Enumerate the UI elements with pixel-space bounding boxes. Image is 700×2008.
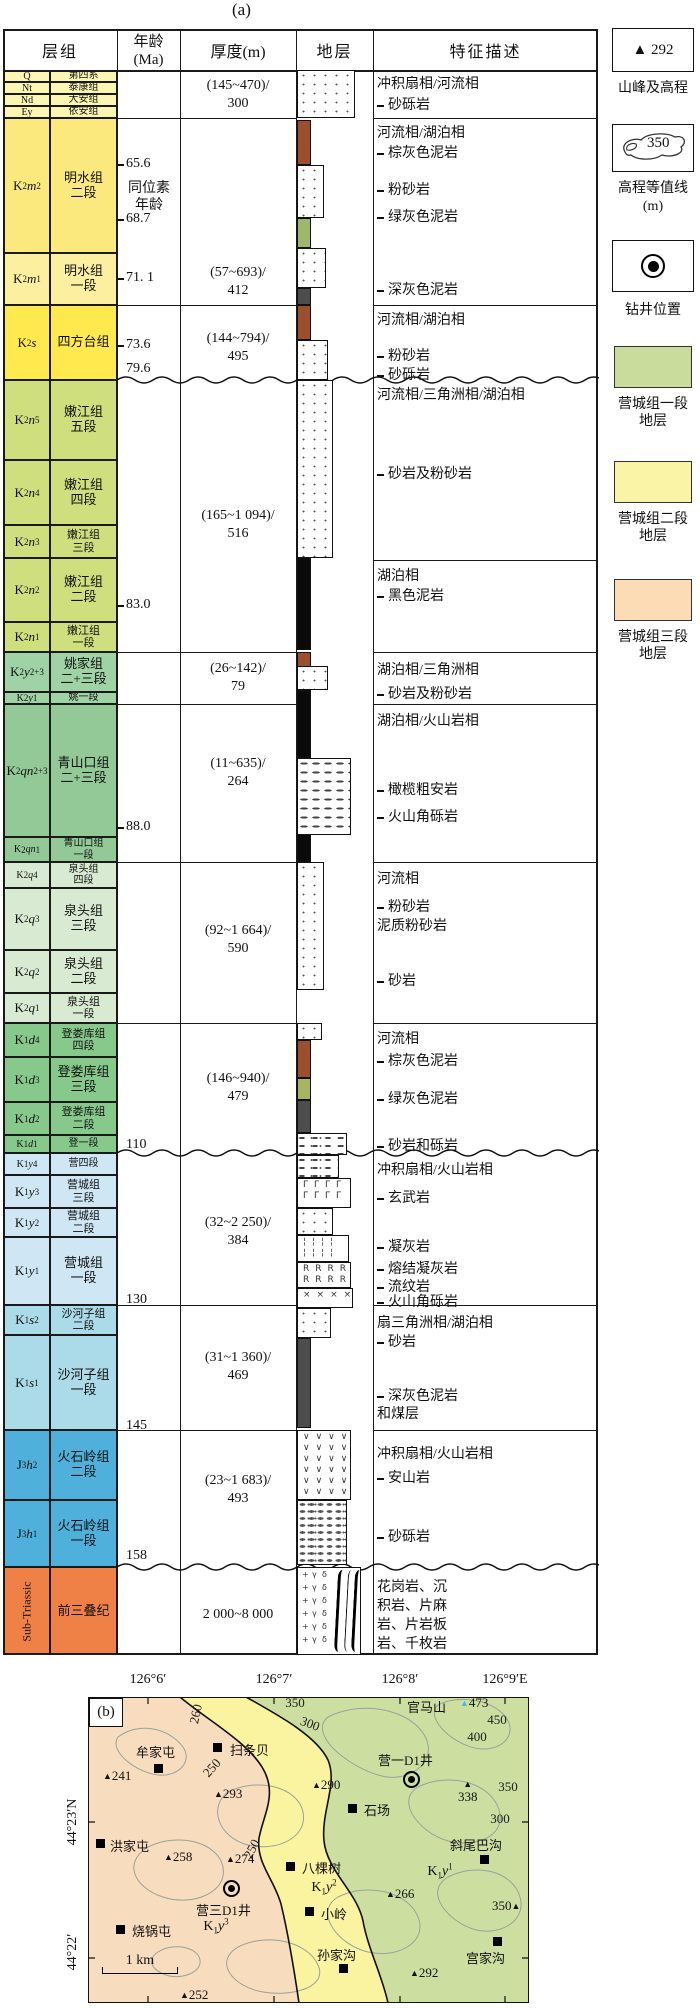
- age-value: 158: [126, 1548, 147, 1564]
- table-vertical-line: [49, 70, 50, 1655]
- description-line: 积岩、片麻: [377, 1595, 597, 1615]
- description-line: 粉砂岩: [377, 896, 597, 916]
- map-zone-label: K1y1: [427, 1861, 452, 1880]
- legend-yingcheng2-swatch: [614, 461, 692, 503]
- strat-code-cell: K2qn2+3: [4, 704, 50, 837]
- peak-elevation: 290: [321, 1777, 341, 1792]
- header-age: 年龄 (Ma): [117, 33, 180, 69]
- map-peak: ▲290: [312, 1777, 340, 1793]
- item-tick: [377, 474, 384, 476]
- age-tick-mark: [117, 219, 124, 221]
- description-line: 火山角砾岩: [377, 1291, 597, 1311]
- strat-name-cell: 青山口组 二+三段: [50, 704, 117, 837]
- description-line: 湖泊相: [377, 565, 597, 585]
- strat-name-cell: 泉头组 一段: [50, 993, 117, 1023]
- thickness-label: (31~1 360)/469: [181, 1349, 295, 1385]
- group-boundary-line: [117, 704, 296, 705]
- legend-contour-box: 350: [612, 124, 694, 172]
- map-peak: ▲473: [460, 1695, 488, 1711]
- item-tick: [377, 153, 384, 155]
- thickness-line2: 79: [181, 678, 295, 696]
- strat-name-cell: 登一段: [50, 1135, 117, 1153]
- legend-yingcheng3-label: 营城组三段: [600, 629, 700, 647]
- legend-peak-box: ▲ 292: [612, 28, 694, 72]
- item-tick: [377, 356, 384, 358]
- map-lat-label: 44°23′N: [65, 1799, 81, 1846]
- group-boundary-line: [117, 1023, 296, 1024]
- map-village-square: [154, 1764, 163, 1773]
- strat-name-cell: 明水组 一段: [50, 253, 117, 305]
- description-line: 扇三角洲相/湖泊相: [377, 1312, 597, 1332]
- description-line: 冲积扇相/火山岩相: [377, 1159, 597, 1179]
- age-value: 73.6: [126, 337, 151, 353]
- age-tick-mark: [117, 827, 124, 829]
- description-line: 深灰色泥岩: [377, 1385, 597, 1405]
- map-contour-label: 450: [487, 1712, 507, 1728]
- thickness-line1: (57~693)/: [181, 264, 295, 282]
- thickness-line1: (11~635)/: [181, 755, 295, 773]
- litho-bar-black: [297, 558, 311, 650]
- strat-name-cell: 嫩江组 五段: [50, 380, 117, 460]
- description-line: 粉砂岩: [377, 179, 597, 199]
- thickness-line2: 516: [181, 525, 295, 543]
- litho-bar-black: [297, 833, 311, 862]
- description-line: 岩、片岩板: [377, 1614, 597, 1634]
- header-formation: 层组: [3, 29, 117, 70]
- strat-code-cell: K2y2+3: [4, 652, 50, 692]
- peak-elevation: 292: [419, 1965, 439, 1980]
- thickness-line2: 264: [181, 773, 295, 791]
- strat-code-cell: K2n4: [4, 460, 50, 525]
- item-tick: [377, 1302, 384, 1304]
- strat-name-cell: 泰康组: [50, 82, 117, 94]
- map-peak: ▲266: [386, 1886, 414, 1902]
- item-tick: [377, 790, 384, 792]
- strat-code-cell: K2n5: [4, 380, 50, 460]
- age-tick-mark: [117, 605, 124, 607]
- strat-code-cell: K2q2: [4, 950, 50, 993]
- basement-glyph-column: δ δ δ δ δ δ: [322, 1568, 327, 1646]
- strat-code-cell: K2y1: [4, 692, 50, 704]
- age-value: 83.0: [126, 597, 151, 613]
- thickness-label: (92~1 664)/590: [181, 922, 295, 958]
- group-boundary-line: [373, 862, 598, 863]
- map-peak: ▲338: [458, 1781, 478, 1803]
- item-tick: [377, 290, 384, 292]
- thickness-line2: 479: [181, 1088, 295, 1106]
- item-tick: [377, 1287, 384, 1289]
- description-line: 河流相: [377, 1028, 597, 1048]
- group-boundary-line: [117, 118, 296, 119]
- description-line: 冲积扇相/河流相: [377, 73, 597, 93]
- item-tick: [377, 375, 384, 377]
- figure: (a) 层组 年龄 (Ma) 厚度(m) 地层 特征描述 Q第四系Nt泰康组Nd…: [0, 0, 700, 2008]
- description-line: 河流相/三角洲相/湖泊相: [377, 384, 597, 404]
- peak-triangle-icon: ▲: [164, 1852, 173, 1862]
- map-peak: ▲292: [410, 1965, 438, 1981]
- description-line: 砂砾岩: [377, 94, 597, 114]
- item-tick: [377, 817, 384, 819]
- map-village-square: [493, 1937, 502, 1946]
- age-tick-mark: [117, 345, 124, 347]
- strat-name-cell: 登娄库组 三段: [50, 1057, 117, 1102]
- group-boundary-line: [373, 652, 598, 653]
- peak-elevation: 338: [458, 1790, 478, 1803]
- group-boundary-line: [117, 305, 296, 306]
- age-value: 88.0: [126, 819, 151, 835]
- map-lon-label: 126°7′: [256, 1672, 293, 1688]
- legend-yingcheng1-label2: 地层: [600, 413, 700, 431]
- thickness-line2: 384: [181, 1232, 295, 1250]
- item-tick: [377, 105, 384, 107]
- litho-block-glyph: ∨∨∨∨ ∨∨∨∨ ∨∨∨∨ ∨∨∨∨ ∨∨∨∨ ∨∨∨∨: [297, 1430, 351, 1500]
- strat-code-cell: K2q1: [4, 993, 50, 1023]
- description-line: 砂岩和砾岩: [377, 1135, 597, 1155]
- litho-bar-brown: [297, 1040, 311, 1078]
- map-peak: ▲241: [103, 1768, 131, 1784]
- item-tick: [377, 1146, 384, 1148]
- map-well-symbol: [223, 1880, 240, 1897]
- map-zone-label: K1y3: [203, 1916, 228, 1935]
- strat-code-cell: K2m1: [4, 253, 50, 305]
- strat-code-cell: Nt: [4, 82, 50, 94]
- strat-code-cell: K1y3: [4, 1175, 50, 1208]
- peak-elevation: 266: [395, 1886, 415, 1901]
- description-line: 河流相/湖泊相: [377, 122, 597, 142]
- group-boundary-line: [373, 1430, 598, 1431]
- map-village-square: [213, 1743, 222, 1752]
- map-scale-bar: [102, 1967, 178, 1974]
- legend-contour-value: 350: [647, 135, 670, 152]
- description-line: 冲积扇相/火山岩相: [377, 1443, 597, 1463]
- header-age-line2: (Ma): [117, 51, 180, 69]
- strat-code-cell: K2n3: [4, 525, 50, 558]
- peak-triangle-icon: ▲: [460, 1698, 469, 1708]
- strat-code-cell: K1s1: [4, 1335, 50, 1430]
- age-tick-mark: [117, 278, 124, 280]
- item-tick: [377, 1061, 384, 1063]
- strat-name-cell: 姚一段: [50, 692, 117, 704]
- group-boundary-line: [373, 305, 598, 306]
- description-line: 粉砂岩: [377, 345, 597, 365]
- strat-name-cell: 第四系: [50, 70, 117, 82]
- map-village-square: [348, 1804, 357, 1813]
- litho-bar-brown: [297, 120, 311, 165]
- description-line: 砂岩: [377, 970, 597, 990]
- description-line: 泥质粉砂岩: [377, 915, 597, 935]
- strat-name-cell: 沙河子组 二段: [50, 1305, 117, 1335]
- thickness-line1: 2 000~8 000: [181, 1606, 295, 1624]
- map-peak: ▲252: [180, 1987, 208, 2003]
- map-well-label: 营一D1井: [378, 1750, 433, 1769]
- item-tick: [377, 1396, 384, 1398]
- thickness-line2: 493: [181, 1490, 295, 1508]
- litho-block-dots: [297, 165, 324, 218]
- map-village-square: [305, 1907, 314, 1916]
- peak-triangle-icon: ▲: [410, 1968, 419, 1978]
- legend-contour-label: 高程等值线: [600, 180, 700, 198]
- legend-contour-unit: (m): [600, 198, 700, 216]
- item-tick: [377, 1269, 384, 1271]
- strat-name-cell: 泉头组 二段: [50, 950, 117, 993]
- map-lon-label: 126°9′E: [482, 1672, 527, 1688]
- item-tick: [377, 1247, 384, 1249]
- description-line: 河流相/湖泊相: [377, 309, 597, 329]
- description-line: 湖泊相/火山岩相: [377, 710, 597, 730]
- peak-elevation: 350: [492, 1898, 512, 1913]
- legend-peak-value: 292: [651, 42, 674, 59]
- map-peak: ▲293: [214, 1786, 242, 1802]
- strat-code-cell: K2n1: [4, 622, 50, 652]
- litho-bar-black: [297, 690, 311, 758]
- description-line: 安山岩: [377, 1467, 597, 1487]
- thickness-label: (165~1 094)/516: [181, 507, 295, 543]
- strat-code-cell: K2qn1: [4, 837, 50, 862]
- litho-block-dots: [297, 70, 355, 118]
- litho-block-dots: [297, 380, 333, 558]
- header-description: 特征描述: [373, 29, 598, 70]
- litho-bar-brown: [297, 305, 311, 340]
- strat-code-cell: K1y2: [4, 1208, 50, 1237]
- basement-glyph-column: + + + + + +: [302, 1568, 309, 1646]
- map-well-symbol: [403, 1771, 420, 1788]
- map-peak: 350▲: [492, 1898, 520, 1914]
- table-vertical-line: [373, 29, 374, 1655]
- strat-code-cell: K2n2: [4, 558, 50, 622]
- thickness-label: (57~693)/412: [181, 264, 295, 300]
- item-tick: [377, 190, 384, 192]
- item-tick: [377, 596, 384, 598]
- map-well-dot: [408, 1776, 415, 1783]
- peak-triangle-icon: ▲: [214, 1789, 223, 1799]
- well-icon: [641, 254, 665, 278]
- item-tick: [377, 907, 384, 909]
- thickness-label: (32~2 250)/384: [181, 1214, 295, 1250]
- strat-code-cell: K2q4: [4, 862, 50, 888]
- age-value: 71. 1: [126, 270, 154, 286]
- litho-block-glyph: RRRR RRRR: [297, 1262, 351, 1288]
- item-tick: [377, 217, 384, 219]
- strat-name-cell: 营城组 三段: [50, 1175, 117, 1208]
- thickness-label: (145~470)/300: [181, 77, 295, 113]
- header-strata: 地层: [296, 29, 373, 70]
- strat-code-cell: K1y4: [4, 1153, 50, 1175]
- age-value: 130: [126, 1292, 147, 1308]
- map-contour-label: 300: [490, 1811, 510, 1827]
- peak-triangle-icon: ▲: [103, 1771, 112, 1781]
- description-line: 熔结凝灰岩: [377, 1258, 597, 1278]
- peak-triangle-icon: ▲: [312, 1780, 321, 1790]
- description-line: 砂岩: [377, 1331, 597, 1351]
- strat-name-cell: 依安组: [50, 106, 117, 118]
- well-icon-dot: [648, 261, 659, 272]
- thickness-line2: 495: [181, 348, 295, 366]
- peak-triangle-icon: ▲: [386, 1889, 395, 1899]
- map-well-dot: [228, 1885, 235, 1892]
- thickness-label: (11~635)/264: [181, 755, 295, 791]
- map-village-label: 八棵树: [302, 1858, 341, 1877]
- description-line: 湖泊相/三角洲相: [377, 659, 597, 679]
- description-line: 深灰色泥岩: [377, 279, 597, 299]
- description-line: 橄榄粗安岩: [377, 779, 597, 799]
- group-boundary-line: [373, 1023, 598, 1024]
- peak-elevation: 241: [112, 1768, 132, 1783]
- map-lat-label: 44°22′: [65, 1934, 81, 1971]
- map-lon-label: 126°8′: [382, 1672, 419, 1688]
- age-value: 145: [126, 1418, 147, 1434]
- peak-triangle-icon: ▲: [226, 1854, 235, 1864]
- map-village-label: 斜尾巴沟: [450, 1835, 502, 1854]
- map-village-label: 宫家沟: [466, 1948, 505, 1967]
- map-village-label: 扫条贝: [230, 1740, 269, 1759]
- legend-yingcheng2-label: 营城组二段: [600, 511, 700, 529]
- description-line: 棕灰色泥岩: [377, 1050, 597, 1070]
- map-village-square: [339, 1964, 348, 1973]
- strat-code-cell: Sub-Triassic: [4, 1567, 50, 1655]
- strat-name-cell: 青山口组 一段: [50, 837, 117, 862]
- strat-name-cell: 四方台组: [50, 305, 117, 380]
- map-village-label: 孙家沟: [317, 1945, 356, 1964]
- legend-yingcheng1-label: 营城组一段: [600, 396, 700, 414]
- strat-code-cell: K2m2: [4, 118, 50, 253]
- map-contour-label: 400: [467, 1729, 487, 1745]
- strat-code-cell: K1d3: [4, 1057, 50, 1102]
- litho-block-dashes: [297, 758, 351, 835]
- legend-well-label: 钻井位置: [600, 302, 700, 320]
- thickness-line1: (31~1 360)/: [181, 1349, 295, 1367]
- thickness-line1: (32~2 250)/: [181, 1214, 295, 1232]
- map-village-label: 小岭: [321, 1904, 347, 1923]
- strat-name-cell: 营四段: [50, 1153, 117, 1175]
- strat-code-cell: Ey: [4, 106, 50, 118]
- legend-yingcheng3-label2: 地层: [600, 646, 700, 664]
- litho-bar-gray: [297, 1100, 311, 1133]
- map-village-square: [116, 1925, 125, 1934]
- strat-name-cell: 营城组 二段: [50, 1208, 117, 1237]
- strat-code-cell: J3h2: [4, 1430, 50, 1500]
- description-line: 砂岩及粉砂岩: [377, 463, 597, 483]
- thickness-label: 2 000~8 000: [181, 1606, 295, 1624]
- item-tick: [377, 1198, 384, 1200]
- strat-name-cell: 嫩江组 四段: [50, 460, 117, 525]
- table-vertical-line: [3, 29, 5, 1655]
- description-line: 黑色泥岩: [377, 585, 597, 605]
- thickness-line2: 412: [181, 282, 295, 300]
- description-line: 花岗岩、沉: [377, 1576, 597, 1596]
- litho-block-gravel: [297, 1500, 347, 1565]
- litho-block-dashdot: [297, 1133, 347, 1155]
- basement-glyph-column: γ γ γ γ γ γ: [312, 1568, 317, 1646]
- strat-name-cell: 营城组 一段: [50, 1237, 117, 1305]
- map-village-label: 洪家屯: [110, 1836, 149, 1855]
- map-village-square: [96, 1839, 105, 1848]
- strat-name-cell: 登娄库组 二段: [50, 1102, 117, 1135]
- strat-code-cell: K1d4: [4, 1023, 50, 1057]
- legend-yingcheng1-swatch: [614, 346, 692, 388]
- strat-name-cell: 大安组: [50, 94, 117, 106]
- strat-code-cell: Nd: [4, 94, 50, 106]
- group-boundary-line: [373, 704, 598, 705]
- litho-bar-gray: [297, 1338, 311, 1428]
- thickness-label: (146~940)/479: [181, 1070, 295, 1106]
- description-line: 岩、千枚岩: [377, 1633, 597, 1653]
- item-tick: [377, 1478, 384, 1480]
- strat-name-cell: 火石岭组 一段: [50, 1500, 117, 1567]
- description-line: 河流相: [377, 868, 597, 888]
- item-tick: [377, 1537, 384, 1539]
- peak-triangle-icon: ▲: [512, 1901, 521, 1911]
- group-boundary-line: [117, 862, 296, 863]
- thickness-line1: (26~142)/: [181, 660, 295, 678]
- description-line: 绿灰色泥岩: [377, 1088, 597, 1108]
- strat-code-cell: K1s2: [4, 1305, 50, 1335]
- litho-block-dots: [297, 862, 324, 990]
- litho-block-dots: [297, 666, 328, 690]
- panel-b-text: (b): [97, 1704, 115, 1721]
- litho-block-dots: [297, 1023, 322, 1040]
- litho-block-dots: [297, 1308, 331, 1338]
- description-line: 棕灰色泥岩: [377, 142, 597, 162]
- thickness-line1: (144~794)/: [181, 330, 295, 348]
- header-age-line1: 年龄: [117, 33, 180, 51]
- strat-name-cell: 姚家组 二+三段: [50, 652, 117, 692]
- item-tick: [377, 1099, 384, 1101]
- description-line: 玄武岩: [377, 1187, 597, 1207]
- thickness-line1: (23~1 683)/: [181, 1472, 295, 1490]
- peak-triangle-icon: ▲: [463, 1780, 472, 1789]
- litho-block-dashdot: [297, 1155, 339, 1178]
- legend-yingcheng3-swatch: [614, 579, 692, 621]
- description-divider-line: [373, 560, 598, 561]
- description-line: 火山角砾岩: [377, 806, 597, 826]
- item-tick: [377, 981, 384, 983]
- strat-name-cell: 前三叠纪: [50, 1567, 117, 1655]
- age-value: 65.6: [126, 156, 151, 172]
- litho-block-glyph: ΓΓΓΓ ΓΓΓΓ: [297, 1178, 351, 1208]
- strat-code-cell: J3h1: [4, 1500, 50, 1567]
- strat-name-cell: 火石岭组 二段: [50, 1430, 117, 1500]
- map-lon-label: 126°6′: [130, 1672, 167, 1688]
- peak-elevation: 293: [223, 1786, 243, 1801]
- age-value: 68.7: [126, 211, 151, 227]
- group-boundary-line: [117, 652, 296, 653]
- table-horizontal-line: [3, 29, 598, 31]
- map-village-label: 牟家屯: [136, 1742, 175, 1761]
- peak-triangle-icon: ▲: [632, 42, 647, 59]
- litho-block-dots: [297, 340, 328, 380]
- map-contour-label: 350: [498, 1779, 518, 1795]
- legend-well-box: [612, 240, 694, 292]
- thickness-label: (26~142)/79: [181, 660, 295, 696]
- map-village-square: [480, 1855, 489, 1864]
- age-tick-mark: [117, 164, 124, 166]
- header-thickness: 厚度(m): [180, 29, 296, 70]
- strat-code-cell: K1d1: [4, 1135, 50, 1153]
- litho-bar-olive: [297, 1078, 311, 1100]
- strat-name-cell: 登娄库组 四段: [50, 1023, 117, 1057]
- table-vertical-line: [117, 29, 118, 1655]
- litho-block-basement: + + + + + +γ γ γ γ γ γδ δ δ δ δ δ: [297, 1567, 361, 1655]
- thickness-line1: (145~470)/: [181, 77, 295, 95]
- strat-name-cell: 嫩江组 三段: [50, 525, 117, 558]
- legend-peak-label: 山峰及高程: [600, 80, 700, 98]
- peak-elevation: 252: [189, 1987, 209, 2002]
- legend-yingcheng2-label2: 地层: [600, 528, 700, 546]
- litho-bar-gray: [297, 288, 311, 305]
- strat-name-cell: 嫩江组 二段: [50, 558, 117, 622]
- litho-bar-green: [297, 218, 311, 248]
- strat-code-cell: K1y1: [4, 1237, 50, 1305]
